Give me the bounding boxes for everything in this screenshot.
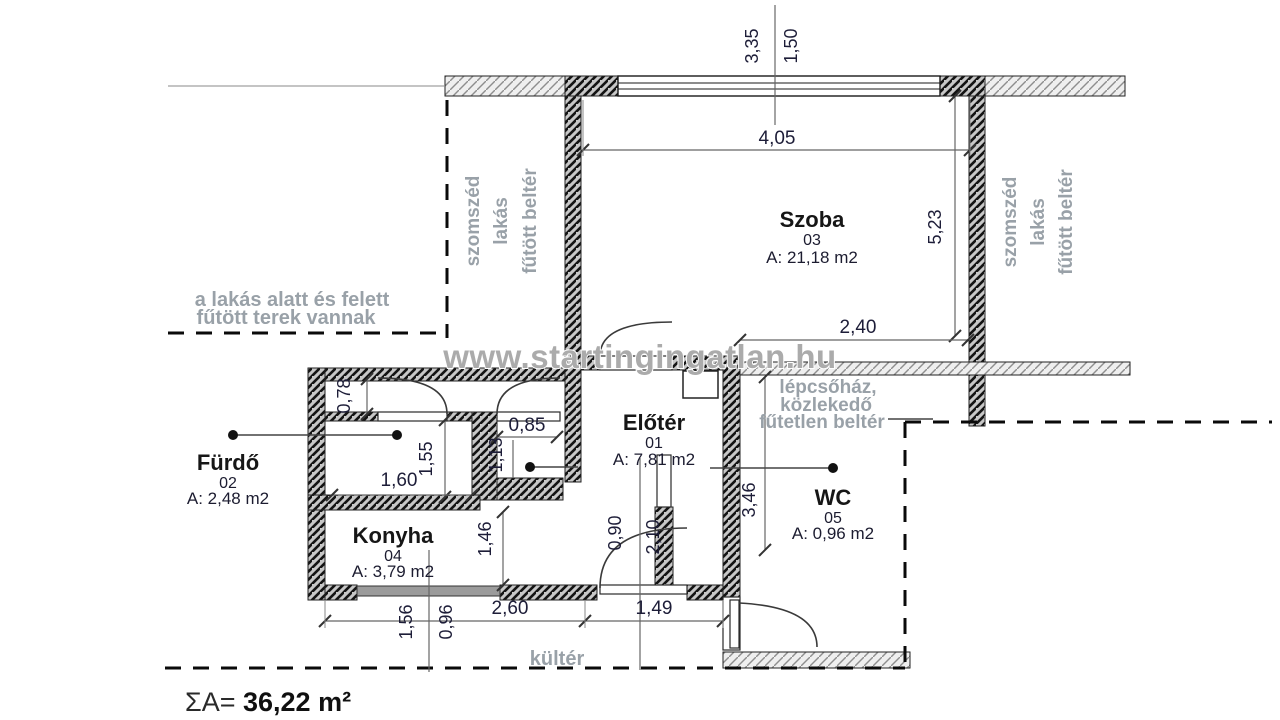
- stairwell-line3: fűtetlen beltér: [759, 412, 885, 433]
- wall-below-hall-niche: [497, 478, 563, 500]
- wall-top-left-segment: [565, 76, 618, 96]
- wall-exterior-strip-bottom-right: [723, 652, 910, 668]
- dim-top-a: 3,35: [742, 28, 762, 63]
- total-area-value: 36,22 m²: [243, 687, 351, 717]
- neighbor-right-line1: szomszéd: [1000, 177, 1021, 268]
- door-arc-hall: [497, 378, 560, 414]
- wall-bottom-c: [687, 585, 723, 600]
- dim-hall-height: 1,13: [486, 437, 506, 472]
- dim-konyha-height: 1,46: [475, 521, 495, 556]
- room-area-eloter: A: 7,81 m2: [613, 450, 695, 469]
- door-leaf-entry: [730, 600, 739, 648]
- dim-szoba-height: 5,23: [925, 209, 945, 244]
- neighbor-right-line3: fűtött beltér: [1056, 169, 1077, 275]
- dim-bottom-a: 1,56: [396, 604, 416, 639]
- dim-szoba-inner: 2,40: [840, 317, 877, 338]
- wall-furdo-top-b: [447, 412, 472, 421]
- room-area-furdo: A: 2,48 m2: [187, 489, 269, 508]
- wall-outer-left: [308, 368, 325, 600]
- neighbor-left-line2: lakás: [491, 197, 512, 245]
- neighbor-left-line1: szomszéd: [463, 176, 484, 267]
- room-label-szoba: Szoba: [780, 207, 846, 232]
- wall-neighbor-strip-top-right: [985, 76, 1125, 96]
- wall-bottom-a: [325, 585, 357, 600]
- note-line2: fűtött terek vannak: [197, 307, 377, 329]
- dim-hall-width: 0,85: [509, 415, 546, 436]
- dim-furdo-width: 1,60: [381, 470, 418, 491]
- outdoor-label: kültér: [530, 648, 585, 670]
- dim-bottom-b: 0,96: [436, 604, 456, 639]
- floorplan-svg: 3,35 1,50 4,05 5,23 2,40 0,78 1,55 1,60 …: [0, 0, 1280, 720]
- dim-szoba-width: 4,05: [759, 128, 796, 149]
- watermark: www.startingingatlan.hu: [442, 338, 836, 375]
- door-opening-furdo: [378, 412, 447, 421]
- room-area-konyha: A: 3,79 m2: [352, 562, 434, 581]
- room-label-eloter: Előtér: [623, 410, 686, 435]
- dim-door-width: 0,90: [605, 515, 625, 550]
- wall-furdo-konyha: [308, 495, 480, 510]
- wall-top-right-segment: [940, 76, 985, 96]
- room-area-wc: A: 0,96 m2: [792, 524, 874, 543]
- floorplan-canvas: 3,35 1,50 4,05 5,23 2,40 0,78 1,55 1,60 …: [0, 0, 1280, 720]
- dim-top-b: 1,50: [781, 28, 801, 63]
- neighbor-right-line2: lakás: [1028, 198, 1049, 246]
- dim-door-height: 2,10: [643, 519, 663, 554]
- room-number-szoba: 03: [803, 232, 821, 249]
- wall-neighbor-strip-top-left: [445, 76, 565, 96]
- dim-nook-height: 0,78: [334, 378, 354, 413]
- dim-entry-width: 1,49: [636, 598, 673, 619]
- shaft-niche: [683, 371, 718, 398]
- dim-furdo-height: 1,55: [416, 441, 436, 476]
- door-opening-konyha-hall: [600, 585, 687, 594]
- neighbor-left-line3: fűtött beltér: [520, 168, 541, 274]
- dim-konyha-width: 2,60: [492, 598, 529, 619]
- room-label-konyha: Konyha: [353, 523, 434, 548]
- room-area-szoba: A: 21,18 m2: [766, 248, 858, 267]
- total-area: ΣA= 36,22 m²: [185, 687, 351, 717]
- wall-szoba-right: [969, 96, 985, 426]
- door-arc-furdo: [378, 378, 447, 414]
- room-label-wc: WC: [815, 485, 852, 510]
- szoba-window: [618, 76, 940, 96]
- room-label-furdo: Fürdő: [197, 450, 259, 475]
- door-arc-entry: [739, 603, 817, 647]
- dim-eloter-height: 3,46: [739, 482, 759, 517]
- wall-eloter-right: [723, 368, 740, 597]
- total-area-prefix: ΣA=: [185, 687, 235, 717]
